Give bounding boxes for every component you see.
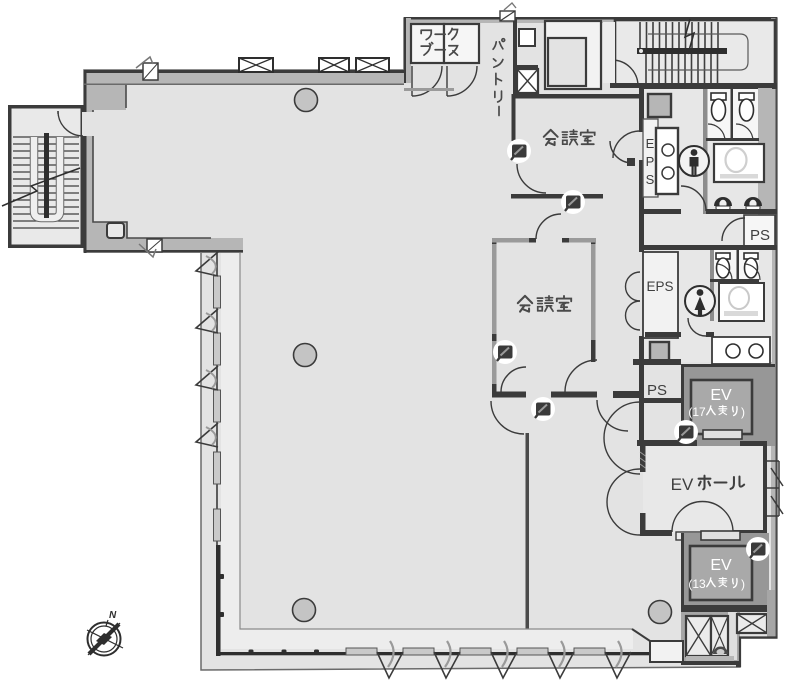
svg-text:EV: EV xyxy=(710,387,732,404)
svg-text:EPS: EPS xyxy=(646,279,673,294)
svg-text:): ) xyxy=(741,577,745,591)
svg-text:(13: (13 xyxy=(688,577,706,591)
svg-text:E: E xyxy=(646,136,655,151)
svg-text:S: S xyxy=(646,172,655,187)
svg-text:EV: EV xyxy=(671,475,694,494)
svg-text:PS: PS xyxy=(647,382,667,399)
svg-text:EV: EV xyxy=(710,557,732,574)
svg-text:PS: PS xyxy=(750,227,770,244)
svg-text:P: P xyxy=(646,154,655,169)
svg-text:(17: (17 xyxy=(688,405,706,419)
svg-text:N: N xyxy=(109,610,117,621)
svg-text:): ) xyxy=(741,405,745,419)
